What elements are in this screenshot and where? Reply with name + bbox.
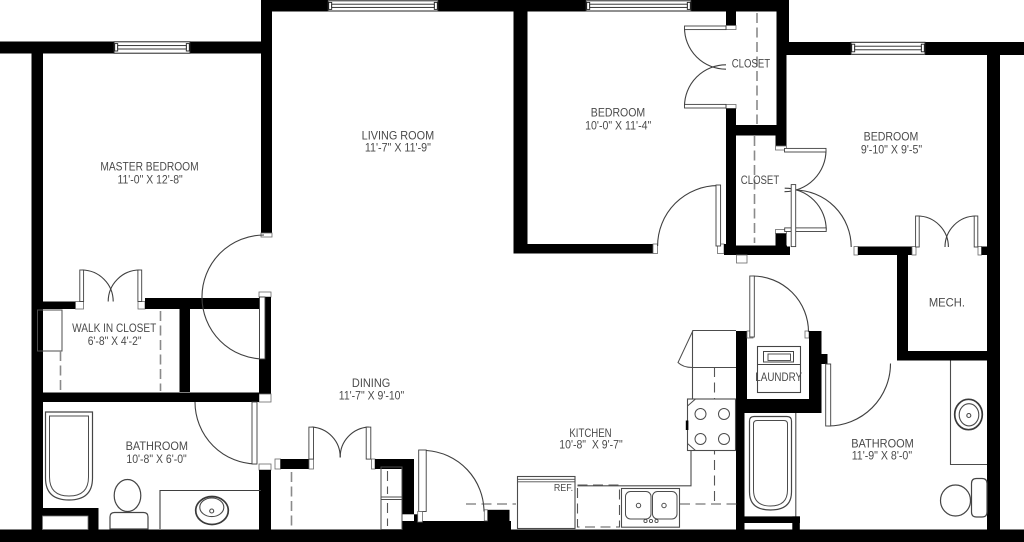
svg-text:BATHROOM: BATHROOM: [851, 437, 914, 451]
svg-text:11'-7" X 9'-10": 11'-7" X 9'-10": [339, 390, 404, 402]
svg-text:CLOSET: CLOSET: [741, 173, 780, 187]
svg-text:LAUNDRY: LAUNDRY: [755, 370, 802, 384]
svg-text:LIVING ROOM: LIVING ROOM: [362, 128, 435, 142]
svg-text:6'-8" X 4'-2": 6'-8" X 4'-2": [88, 336, 142, 348]
svg-text:9'-10" X 9'-5": 9'-10" X 9'-5": [861, 144, 922, 156]
svg-text:11'-0" X 12'-8": 11'-0" X 12'-8": [117, 175, 182, 187]
svg-text:11'-7" X 11'-9": 11'-7" X 11'-9": [365, 143, 431, 155]
svg-text:MECH.: MECH.: [929, 295, 965, 309]
svg-text:REF.: REF.: [554, 482, 573, 494]
svg-text:BATHROOM: BATHROOM: [126, 439, 188, 453]
svg-text:WALK IN CLOSET: WALK IN CLOSET: [72, 321, 157, 335]
svg-text:11'-9" X 8'-0": 11'-9" X 8'-0": [852, 451, 912, 463]
svg-text:DINING: DINING: [352, 376, 390, 390]
svg-text:BEDROOM: BEDROOM: [864, 129, 919, 143]
svg-text:KITCHEN: KITCHEN: [569, 426, 611, 440]
svg-text:10'-8" X 6'-0": 10'-8" X 6'-0": [126, 454, 186, 466]
svg-text:BEDROOM: BEDROOM: [591, 106, 645, 120]
svg-text:10'-0" X 11'-4": 10'-0" X 11'-4": [585, 120, 651, 132]
svg-text:10'-8" X 9'-7": 10'-8" X 9'-7": [559, 440, 622, 452]
svg-text:MASTER BEDROOM: MASTER BEDROOM: [100, 159, 198, 173]
svg-text:CLOSET: CLOSET: [732, 57, 771, 71]
